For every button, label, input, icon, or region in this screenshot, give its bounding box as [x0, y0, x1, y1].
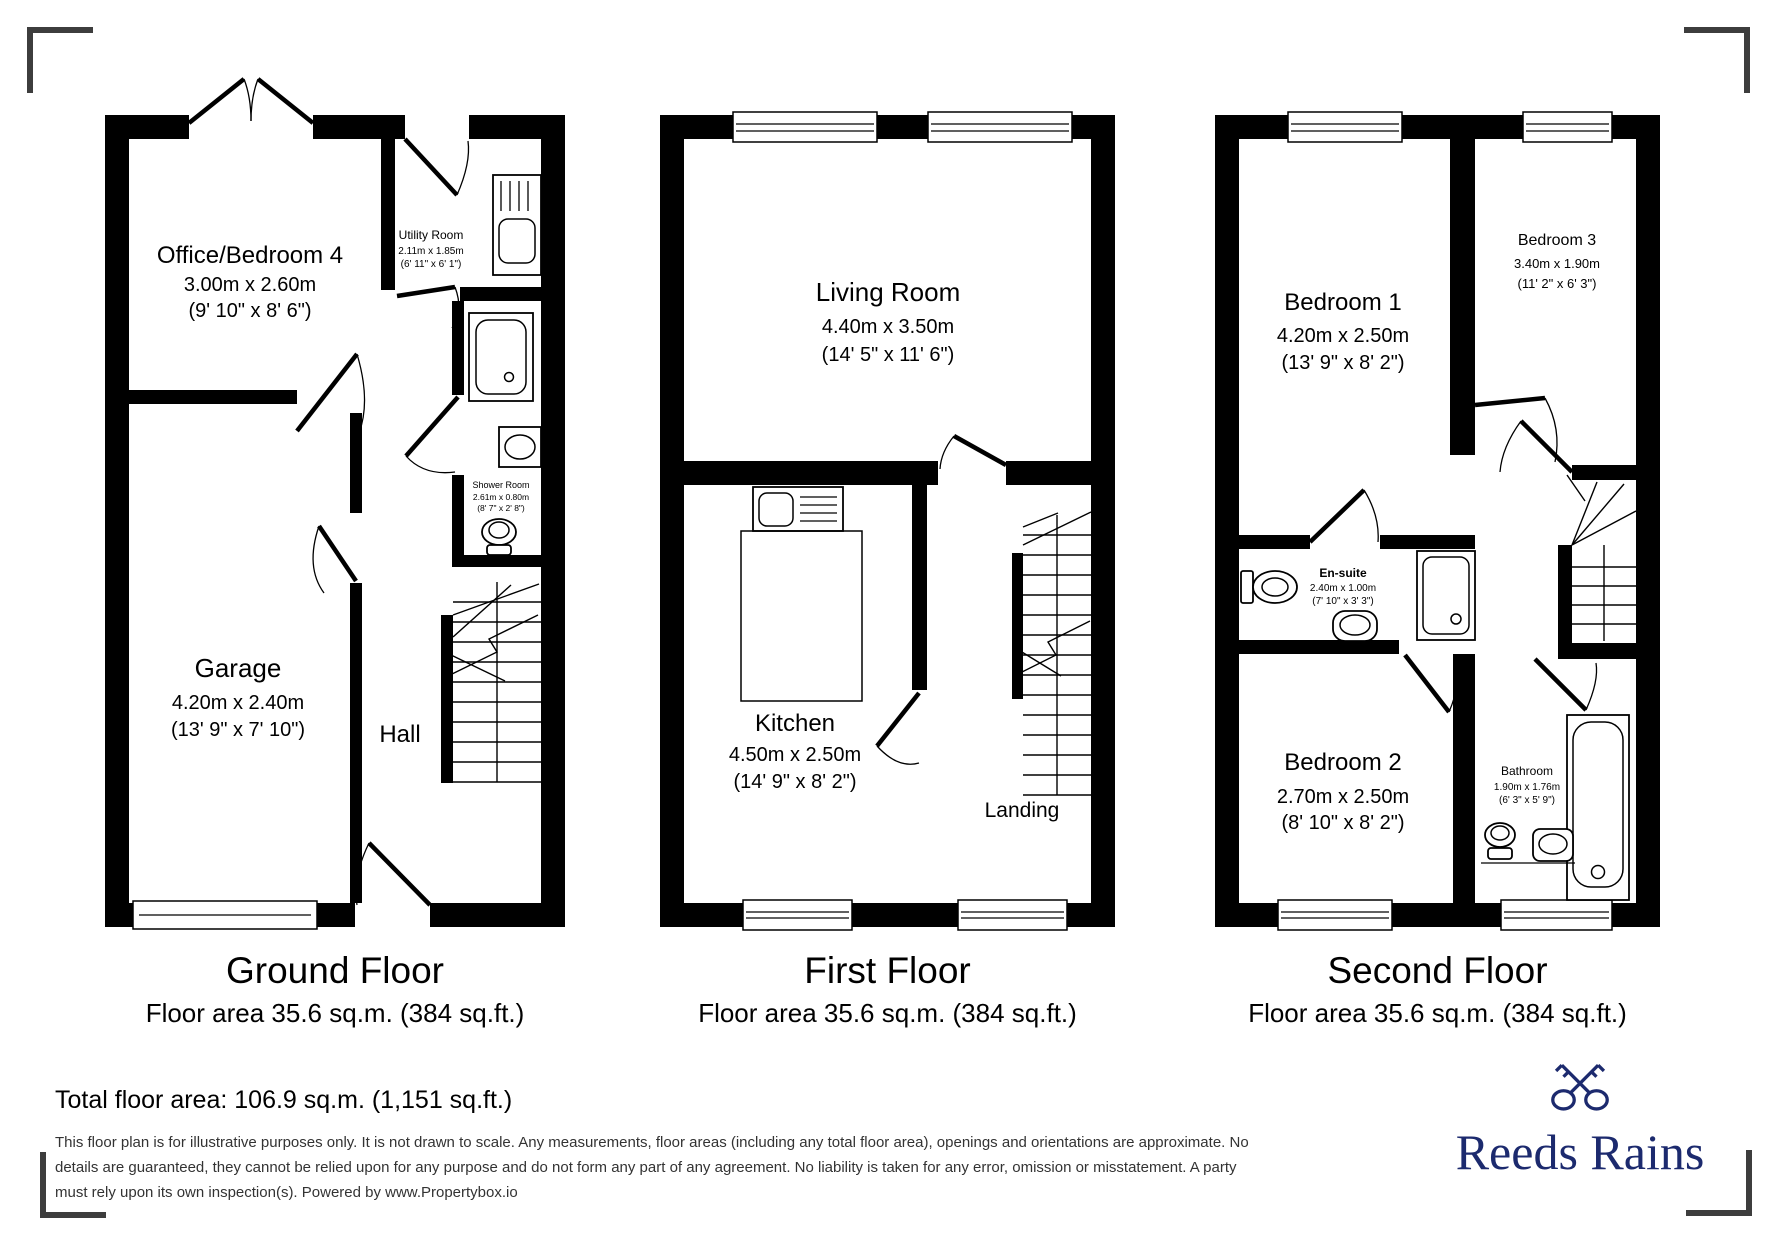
- room-dim-bedroom2-ft: (8' 10" x 8' 2"): [1282, 812, 1405, 834]
- toilet: [482, 519, 516, 555]
- room-label-landing: Landing: [985, 799, 1060, 822]
- room-dim-ensuite-ft: (7' 10" x 3' 3"): [1312, 596, 1374, 607]
- ensuite-shower: [1417, 551, 1475, 640]
- room-label-bedroom2: Bedroom 2: [1284, 749, 1401, 776]
- brand-name: Reeds Rains: [1440, 1123, 1720, 1181]
- room-label-bedroom1: Bedroom 1: [1284, 289, 1401, 316]
- staircase: [450, 582, 541, 782]
- room-dim-garage-m: 4.20m x 2.40m: [172, 692, 304, 714]
- ground-floor-plan: Office/Bedroom 4 3.00m x 2.60m (9' 10" x…: [105, 65, 565, 935]
- french-doors: [189, 79, 313, 123]
- room-label-kitchen: Kitchen: [755, 710, 835, 737]
- disclaimer-line-1: This floor plan is for illustrative purp…: [55, 1130, 1249, 1155]
- utility-sink: [493, 175, 541, 275]
- room-label-utility: Utility Room: [399, 228, 464, 242]
- doors: [877, 436, 1006, 764]
- room-dim-shower-m: 2.61m x 0.80m: [473, 492, 529, 502]
- first-floor-title: First Floor: [660, 950, 1115, 992]
- room-dim-living-ft: (14' 5" x 11' 6"): [822, 344, 955, 366]
- room-dim-office-ft: (9' 10" x 8' 6"): [189, 300, 312, 322]
- room-dim-bathroom-ft: (6' 3" x 5' 9"): [1499, 795, 1555, 806]
- room-label-bathroom: Bathroom: [1501, 764, 1553, 778]
- room-labels: Office/Bedroom 4 3.00m x 2.60m (9' 10" x…: [157, 228, 530, 748]
- room-label-shower-room: Shower Room: [472, 480, 529, 490]
- brand-logo: Reeds Rains: [1440, 1052, 1720, 1181]
- shower-tray: [469, 313, 533, 401]
- disclaimer-line-3: must rely upon its own inspection(s). Po…: [55, 1180, 1249, 1205]
- room-label-garage: Garage: [195, 653, 282, 683]
- kitchen-counter: [741, 531, 862, 701]
- bathroom-toilet: [1485, 823, 1515, 859]
- room-dim-bathroom-m: 1.90m x 1.76m: [1494, 782, 1560, 793]
- room-dim-ensuite-m: 2.40m x 1.00m: [1310, 583, 1376, 594]
- kitchen-sink: [753, 487, 843, 531]
- first-floor-plan: Living Room 4.40m x 3.50m (14' 5" x 11' …: [660, 109, 1115, 933]
- second-floor-area: Floor area 35.6 sq.m. (384 sq.ft.): [1215, 998, 1660, 1029]
- second-floor-plan: Bedroom 1 4.20m x 2.50m (13' 9" x 8' 2")…: [1215, 109, 1660, 933]
- room-label-ensuite: En-suite: [1319, 566, 1367, 580]
- room-dim-shower-ft: (8' 7" x 2' 8"): [477, 503, 525, 513]
- room-dim-bedroom3-ft: (11' 2" x 6' 3"): [1518, 276, 1597, 291]
- total-floor-area: Total floor area: 106.9 sq.m. (1,151 sq.…: [55, 1086, 512, 1115]
- room-dim-kitchen-m: 4.50m x 2.50m: [729, 744, 861, 766]
- first-floor-area: Floor area 35.6 sq.m. (384 sq.ft.): [660, 998, 1115, 1029]
- staircase: [1567, 475, 1636, 641]
- room-dim-bedroom1-ft: (13' 9" x 8' 2"): [1282, 352, 1405, 374]
- room-dim-kitchen-ft: (14' 9" x 8' 2"): [734, 771, 857, 793]
- room-dim-bedroom3-m: 3.40m x 1.90m: [1514, 256, 1600, 271]
- room-dim-bedroom2-m: 2.70m x 2.50m: [1277, 786, 1409, 808]
- room-dim-office-m: 3.00m x 2.60m: [184, 274, 316, 296]
- washbasin: [499, 427, 541, 467]
- room-label-bedroom3: Bedroom 3: [1518, 232, 1596, 249]
- staircase: [1016, 512, 1091, 795]
- ensuite-toilet: [1241, 571, 1297, 603]
- bathtub: [1567, 715, 1629, 900]
- ensuite-sink: [1333, 611, 1377, 641]
- room-dim-utility-m: 2.11m x 1.85m: [398, 246, 463, 257]
- room-dim-living-m: 4.40m x 3.50m: [822, 316, 954, 338]
- second-floor-title: Second Floor: [1215, 950, 1660, 992]
- crossed-keys-icon: [1530, 1052, 1630, 1118]
- ground-floor-area: Floor area 35.6 sq.m. (384 sq.ft.): [105, 998, 565, 1029]
- room-label-hall: Hall: [379, 721, 420, 748]
- corner-bracket-top-left: [27, 27, 93, 93]
- room-dim-bedroom1-m: 4.20m x 2.50m: [1277, 325, 1409, 347]
- room-labels: Bedroom 1 4.20m x 2.50m (13' 9" x 8' 2")…: [1277, 232, 1600, 834]
- disclaimer-line-2: details are guaranteed, they cannot be r…: [55, 1155, 1249, 1180]
- room-dim-garage-ft: (13' 9" x 7' 10"): [171, 719, 305, 741]
- room-dim-utility-ft: (6' 11" x 6' 1"): [401, 259, 462, 270]
- room-label-office-bedroom4: Office/Bedroom 4: [157, 242, 343, 269]
- room-labels: Living Room 4.40m x 3.50m (14' 5" x 11' …: [729, 277, 1060, 822]
- room-label-living-room: Living Room: [816, 277, 961, 307]
- corner-bracket-top-right: [1684, 27, 1750, 93]
- ground-floor-title: Ground Floor: [105, 950, 565, 992]
- floorplan-canvas: Office/Bedroom 4 3.00m x 2.60m (9' 10" x…: [0, 0, 1771, 1239]
- garage-door: [133, 901, 317, 929]
- disclaimer: This floor plan is for illustrative purp…: [55, 1130, 1249, 1205]
